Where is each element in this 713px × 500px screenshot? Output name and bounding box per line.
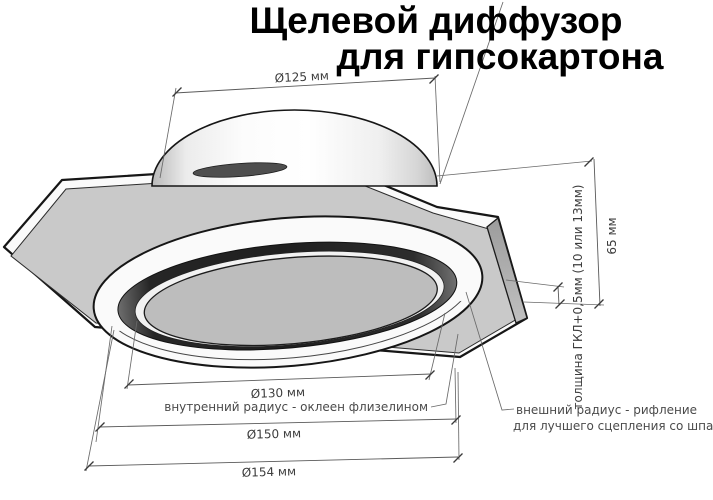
dim-154-ext-left — [86, 330, 114, 471]
dim-130-line — [128, 374, 431, 385]
dim-label-inner-diameter: Ø130 мм — [250, 385, 305, 401]
dim-label-flange-diameter: Ø154 мм — [242, 464, 297, 479]
dim-125-ext-right — [435, 76, 440, 182]
page-title-line1: Щелевой диффузор — [249, 0, 622, 41]
diagram-canvas: Щелевой диффузор для гипсокартона Ø125 м… — [0, 0, 713, 500]
dim-label-duct-diameter: Ø125 мм — [274, 69, 329, 86]
annotation-outer-radius-line1: внешний радиус - рифление — [516, 403, 697, 417]
dim-150-ext-right — [455, 368, 456, 423]
dim-65-line — [594, 159, 600, 306]
dim-thickness-line — [558, 286, 559, 305]
dim-label-total-height: 65 мм — [605, 217, 619, 254]
dim-65-ext-top — [437, 161, 592, 176]
dim-154-ext-right — [458, 372, 459, 460]
annotation-inner-radius: внутренний радиус - оклеен флизелином — [164, 400, 428, 414]
dim-label-plate-thickness: толщина ГКЛ+0,5мм (10 или 13мм) — [571, 185, 585, 410]
duct-dome — [152, 110, 437, 186]
technical-drawing-page: Щелевой диффузор для гипсокартона Ø125 м… — [0, 0, 713, 500]
page-title-line2: для гипсокартона — [337, 36, 664, 77]
dim-150-ext-left — [96, 326, 112, 442]
dim-label-outer-diameter: Ø150 мм — [247, 426, 302, 441]
annotation-outer-radius-line2: для лучшего сцепления со шпаклёвкой — [513, 419, 713, 433]
dim-65-ext-bottom — [524, 302, 604, 305]
dim-150-line — [99, 419, 457, 427]
